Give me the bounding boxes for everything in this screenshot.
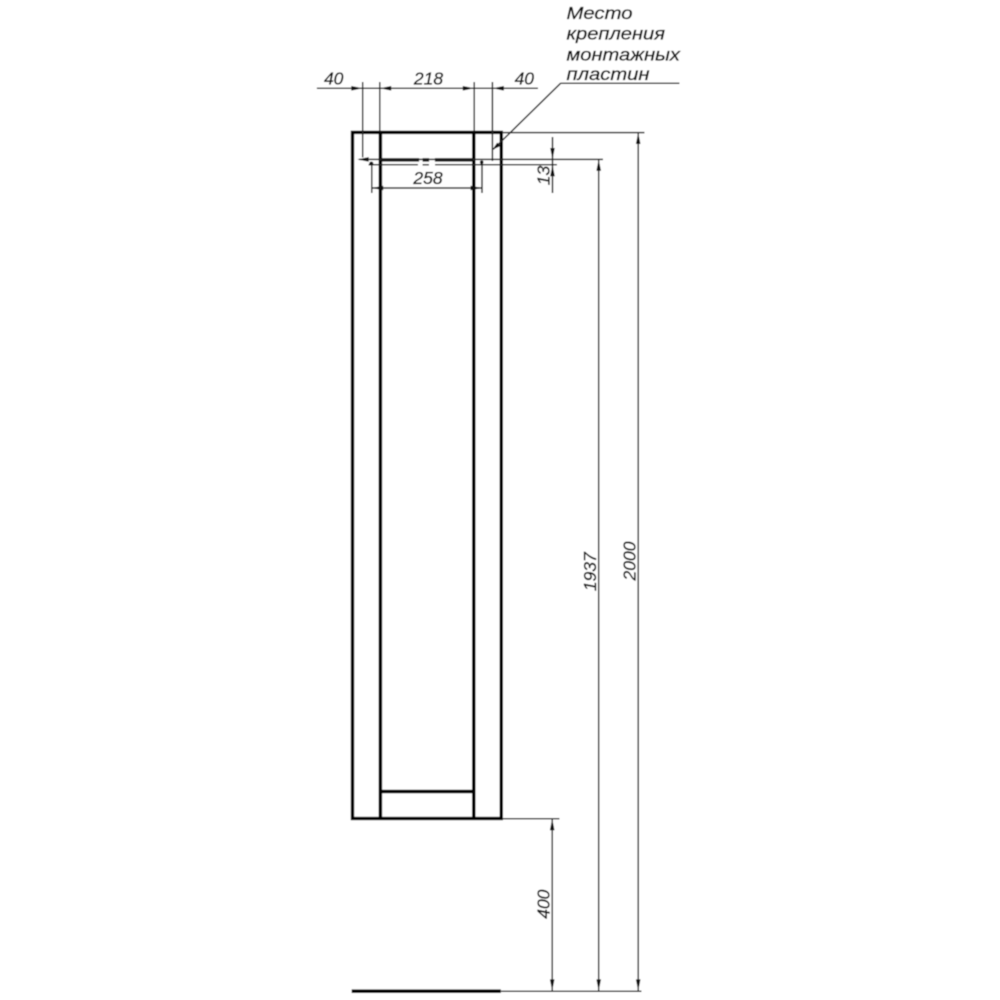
svg-text:400: 400 [533, 889, 553, 918]
svg-text:218: 218 [413, 69, 443, 89]
svg-text:1937: 1937 [580, 551, 600, 591]
svg-text:258: 258 [412, 168, 442, 188]
svg-text:крепления: крепления [567, 24, 666, 44]
svg-text:Место: Место [567, 3, 633, 23]
svg-text:монтажных: монтажных [567, 44, 682, 64]
svg-text:40: 40 [515, 69, 535, 89]
svg-text:40: 40 [324, 69, 344, 89]
svg-text:пластин: пластин [567, 64, 650, 84]
svg-text:2000: 2000 [619, 541, 639, 581]
svg-text:13: 13 [534, 166, 554, 186]
